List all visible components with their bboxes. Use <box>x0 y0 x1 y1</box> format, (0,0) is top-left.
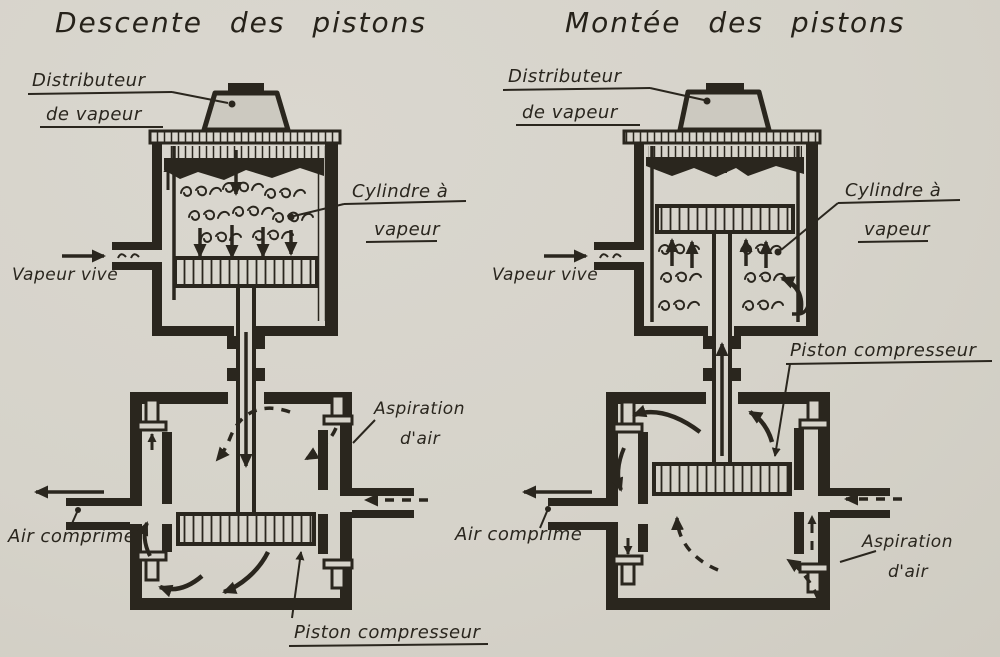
left-machine: Descente des pistons Distributeur de vap… <box>7 6 488 646</box>
compressor-cylinder <box>130 392 352 610</box>
compressed-air-arrow <box>618 448 624 490</box>
label-cylindre-vapeur: Cylindre à vapeur <box>775 180 961 256</box>
gland-nub <box>255 368 265 381</box>
svg-text:Aspiration: Aspiration <box>861 532 953 552</box>
cylinder-wall-left <box>152 262 162 335</box>
leader-line <box>840 551 876 562</box>
steam-push-down-arrows <box>200 225 291 257</box>
label-air-comprime: Air comprimé <box>7 507 135 547</box>
gland-nub <box>227 368 237 381</box>
label-distributeur: Distributeur de vapeur <box>28 70 236 127</box>
right-title: Montée des pistons <box>565 6 905 39</box>
valve-bottom-left <box>614 556 642 584</box>
svg-text:d'air: d'air <box>400 429 441 449</box>
leader-dot <box>229 101 236 108</box>
steam-cylinder <box>624 0 855 336</box>
compressed-air-arrow <box>160 576 202 589</box>
leader-dot <box>704 98 711 105</box>
gland-nub <box>255 336 265 349</box>
label-vapeur-vive: Vapeur vive <box>492 265 598 285</box>
svg-text:Cylindre à: Cylindre à <box>352 181 448 202</box>
piston-rod <box>703 232 741 464</box>
label-distributeur: Distributeur de vapeur <box>503 66 711 125</box>
valve-tab <box>717 157 727 173</box>
gland-nub <box>703 368 713 381</box>
svg-text:de vapeur: de vapeur <box>46 104 143 125</box>
pneumatic-compressor-figure: Descente des pistons Distributeur de vap… <box>0 0 1000 657</box>
cylinder-top-flange <box>150 131 340 143</box>
steam-push-up-arrows <box>672 240 766 268</box>
label-cylindre-vapeur: Cylindre à vapeur <box>288 181 467 242</box>
cylinder-bottom <box>256 326 338 336</box>
gland-nub <box>703 336 713 349</box>
compressor-cylinder <box>606 392 830 610</box>
svg-text:d'air: d'air <box>888 562 929 582</box>
leader-line <box>353 420 375 443</box>
distributor-cap-body <box>204 93 288 130</box>
piston-rod <box>227 286 265 514</box>
leader-line <box>775 364 790 456</box>
leader-dot <box>288 214 295 221</box>
svg-text:Air comprimé: Air comprimé <box>454 524 582 545</box>
air-outlet-pipe <box>36 492 130 530</box>
compressed-air-arrow <box>750 412 772 442</box>
inner-wall <box>638 432 648 504</box>
gland-nub <box>227 336 237 349</box>
steam-space-hatch <box>648 146 802 158</box>
steam-space-hatch <box>166 146 318 159</box>
svg-text:Aspiration: Aspiration <box>373 399 465 419</box>
leader-dot <box>775 249 782 256</box>
steam-piston <box>175 258 317 286</box>
air-intake-dashed-arrow <box>677 518 718 570</box>
steam-space-dark <box>164 158 324 180</box>
label-aspiration: Aspiration d'air <box>840 532 953 582</box>
steam-piston <box>657 206 793 232</box>
compressor-piston <box>654 464 790 494</box>
svg-text:vapeur: vapeur <box>864 219 931 240</box>
inner-wall <box>794 428 804 490</box>
label-air-comprime: Air comprimé <box>454 506 582 545</box>
air-intake-pipe <box>352 488 428 518</box>
svg-text:Distributeur: Distributeur <box>508 66 623 87</box>
svg-text:vapeur: vapeur <box>374 219 441 240</box>
compressor-piston <box>178 514 314 544</box>
steam-distributor <box>204 83 288 130</box>
steam-marks <box>600 254 621 258</box>
cylinder-wall-left <box>152 143 162 250</box>
right-machine: Montée des pistons Distributeur de vapeu… <box>454 0 992 610</box>
svg-text:Piston compresseur: Piston compresseur <box>294 622 482 643</box>
inner-wall <box>162 524 172 552</box>
svg-text:Distributeur: Distributeur <box>32 70 147 91</box>
label-vapeur-vive: Vapeur vive <box>12 265 118 285</box>
intake-valve-top-left <box>138 400 166 430</box>
left-title: Descente des pistons <box>55 6 427 39</box>
steam-cylinder <box>150 131 340 336</box>
cylinder-top-flange <box>624 131 820 143</box>
inner-wall <box>794 512 804 554</box>
delivery-valve-top-left <box>614 402 642 432</box>
svg-text:Piston compresseur: Piston compresseur <box>790 340 978 361</box>
cylinder-bottom <box>152 326 234 336</box>
svg-text:de vapeur: de vapeur <box>522 102 619 123</box>
delivery-valve-bottom-left <box>138 552 166 580</box>
label-aspiration: Aspiration d'air <box>353 399 465 449</box>
inner-wall <box>638 524 648 552</box>
gland-nub <box>731 368 741 381</box>
svg-text:Air comprimé: Air comprimé <box>7 526 135 547</box>
steam-distributor <box>680 83 769 130</box>
cylinder-wall-right <box>325 143 338 335</box>
inner-wall <box>318 514 328 554</box>
compressed-air-arrow <box>224 552 268 592</box>
gland-nub <box>731 336 741 349</box>
steam-marks <box>118 254 139 258</box>
inner-wall <box>318 430 328 490</box>
compressed-air-arrow <box>634 412 700 432</box>
inner-wall <box>162 432 172 504</box>
svg-text:Cylindre à: Cylindre à <box>845 180 941 201</box>
air-intake-pipe <box>830 488 902 518</box>
